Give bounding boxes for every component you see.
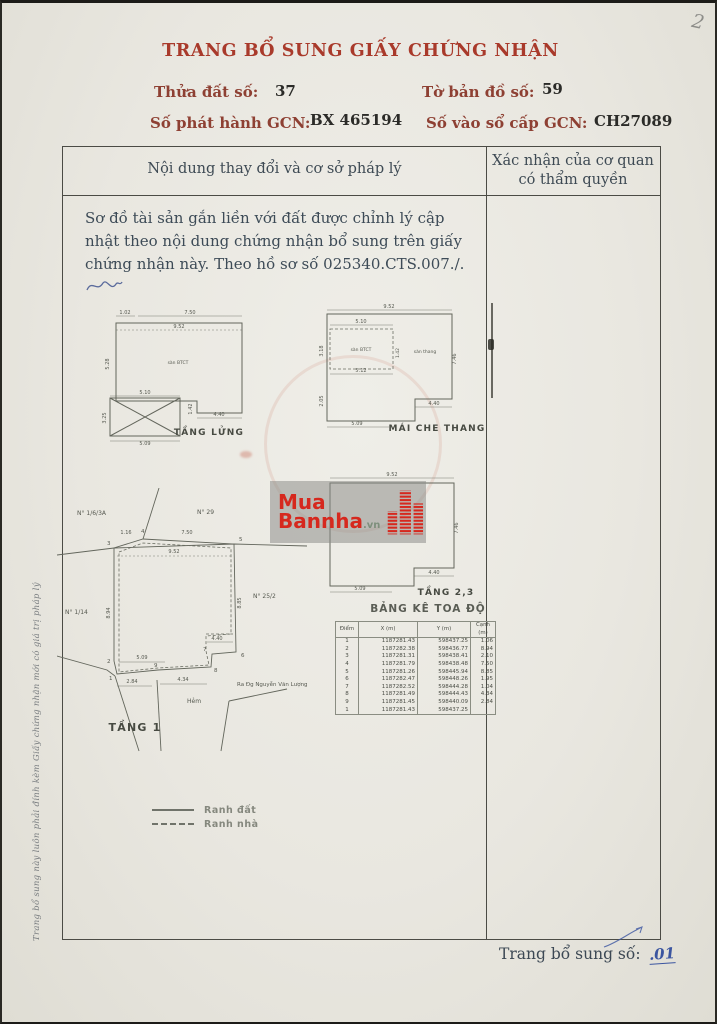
coord-cell-x: 1187281.26 [359, 669, 418, 677]
point-label: 3 [107, 541, 111, 547]
neighbor-parcel-labels: N° 1/6/3A N° 29 N° 1/14 N° 25/2 [65, 509, 276, 616]
coord-cell-canh: 2.10 [471, 653, 496, 661]
coord-row: 61187282.47598448.261.95 [336, 676, 496, 684]
coord-row: 81187281.49598444.434.34 [336, 691, 496, 699]
dim-label: 4.40 [211, 636, 222, 642]
coord-row: 71187282.52598444.281.04 [336, 684, 496, 692]
coord-header-row: Điểm X (m) Y (m) Cạnh (m) [336, 622, 496, 638]
dim-label: 5.28 [105, 358, 111, 369]
coord-cell-canh: 1.04 [471, 684, 496, 692]
dim-label: 9.52 [168, 549, 179, 555]
field-value-so-phat-hanh: BX 465194 [310, 111, 402, 129]
dim-label: 5.10 [355, 319, 366, 325]
content-paragraph: Sơ đồ tài sản gắn liền với đất được chỉn… [85, 207, 473, 298]
coord-cell-y: 598445.94 [418, 669, 471, 677]
coord-cell-x: 1187281.43 [359, 707, 418, 715]
coord-cell-y: 598438.41 [418, 653, 471, 661]
solid-line-sample [152, 809, 194, 811]
coord-cell-diem: 3 [336, 653, 359, 661]
coord-cell-diem: 8 [336, 691, 359, 699]
coord-cell-x: 1187282.38 [359, 646, 418, 654]
coord-cell-diem: 1 [336, 638, 359, 646]
plan-dim-lines [327, 310, 452, 427]
coord-cell-diem: 1 [336, 707, 359, 715]
footer: Trang bổ sung số:.01 [499, 944, 675, 964]
point-label: 5 [239, 537, 243, 543]
dim-label: 1.42 [395, 348, 401, 358]
coord-cell-canh: 8.85 [471, 669, 496, 677]
coord-cell-canh: 8.94 [471, 646, 496, 654]
dim-label: 7.46 [452, 353, 458, 364]
coord-cell-canh: 1.95 [471, 676, 496, 684]
dim-label: 5.12 [355, 368, 366, 374]
point-label: 8 [214, 668, 218, 674]
coord-cell-x: 1187281.43 [359, 638, 418, 646]
coord-table-title: BẢNG KÊ TOA ĐỘ [362, 603, 494, 615]
dim-label: 2.84 [126, 679, 137, 685]
coord-cell-y: 598440.09 [418, 699, 471, 707]
field-value-so-vao-so: CH27089 [594, 112, 672, 130]
coord-cell-x: 1187281.31 [359, 653, 418, 661]
dim-label: 7.50 [184, 310, 195, 316]
site-plan-tang-1: 1.16 7.50 9.52 5.09 2.84 4.34 4.40 8.94 … [57, 488, 312, 753]
dim-label: 9.52 [383, 304, 394, 310]
side-vertical-note: Trang bổ sung này luôn phải đính kèm Giấ… [32, 541, 42, 941]
col2-header: Xác nhận của cơ quan có thẩm quyền [487, 152, 659, 190]
coord-header-x: X (m) [359, 622, 418, 638]
scan-artifact-mark [488, 339, 494, 350]
dim-label: 7.50 [181, 530, 192, 536]
plan-title-tang-2-3: TẦNG 2,3 [418, 585, 475, 598]
watermark-buildings-icon [386, 485, 426, 539]
coord-cell-x: 1187282.52 [359, 684, 418, 692]
floor-plan-tang-lung: 1.02 7.50 9.52 5.28 5.10 5.09 3.25 4.40 … [102, 306, 277, 446]
table-header-row: Nội dung thay đổi và cơ sở pháp lý Xác n… [63, 147, 660, 196]
dim-label: 5.09 [351, 421, 362, 427]
field-value-thua-dat: 37 [275, 82, 296, 100]
coord-cell-x: 1187281.45 [359, 699, 418, 707]
coord-cell-diem: 6 [336, 676, 359, 684]
pen-stroke [602, 925, 644, 949]
dim-label: 4.40 [213, 412, 224, 418]
coord-row: 31187281.31598438.412.10 [336, 653, 496, 661]
coord-row: 11187281.43598437.25 [336, 707, 496, 715]
legend-item-ranh-dat: Ranh đất [152, 803, 259, 817]
coord-cell-canh: 1.06 [471, 638, 496, 646]
dim-label: 5.09 [136, 655, 147, 661]
coord-cell-canh [471, 707, 496, 715]
legend-item-ranh-nha: Ranh nhà [152, 817, 259, 831]
street-label: Ra Đg Nguyễn Văn Lượng [237, 681, 308, 688]
scan-artifact-line [491, 303, 493, 398]
coord-table-body: 11187281.43598437.251.0621187282.3859843… [336, 638, 496, 715]
red-ink-smudge [240, 451, 252, 458]
plan-dim-lines [110, 316, 242, 441]
coord-cell-x: 1187281.79 [359, 661, 418, 669]
page-title: TRANG BỔ SUNG GIẤY CHỨNG NHẬN [2, 41, 717, 61]
coord-header-diem: Điểm [336, 622, 359, 638]
coord-cell-y: 598438.48 [418, 661, 471, 669]
house-boundary-lines [117, 543, 233, 686]
content-text: Sơ đồ tài sản gắn liền với đất được chỉn… [85, 209, 464, 273]
coord-cell-y: 598444.43 [418, 691, 471, 699]
dim-label: 4.40 [428, 401, 439, 407]
dashed-line-sample [152, 823, 194, 825]
coord-cell-diem: 9 [336, 699, 359, 707]
dim-label: 5.09 [139, 441, 150, 446]
dim-label: 8.94 [106, 607, 112, 618]
dim-label: 3.18 [319, 345, 325, 356]
coord-row: 91187281.45598440.092.84 [336, 699, 496, 707]
land-boundary-lines [57, 488, 307, 751]
point-label: 1 [109, 676, 113, 682]
handwritten-page-number: 2 [690, 10, 706, 34]
dim-label: 1.16 [120, 530, 131, 536]
coord-cell-y: 598437.25 [418, 707, 471, 715]
coord-header-y: Y (m) [418, 622, 471, 638]
plan-title-mai-che-thang: MÁI CHE THANG [389, 422, 486, 434]
coord-cell-diem: 4 [336, 661, 359, 669]
point-label: 7 [203, 647, 207, 653]
watermark-suffix: .vn [363, 520, 380, 531]
plan-title-tang-1: TẦNG 1 [109, 720, 162, 734]
area-label-stair: sàn thang [414, 348, 437, 355]
dim-label: 9.52 [386, 472, 397, 478]
coord-cell-y: 598448.26 [418, 676, 471, 684]
coord-row: 11187281.43598437.251.06 [336, 638, 496, 646]
coord-cell-y: 598444.28 [418, 684, 471, 692]
neighbor-label: N° 25/2 [253, 593, 276, 600]
coord-cell-canh: 7.50 [471, 661, 496, 669]
field-label-so-phat-hanh: Số phát hành GCN: [150, 114, 310, 132]
legend-label: Ranh đất [204, 805, 256, 816]
point-label: 2 [107, 659, 111, 665]
coord-cell-x: 1187281.49 [359, 691, 418, 699]
neighbor-label: N° 1/14 [65, 609, 88, 616]
dim-label: 8.85 [237, 597, 243, 608]
coord-row: 51187281.26598445.948.85 [336, 669, 496, 677]
plan-title-tang-lung: TẦNG LỬNG [174, 425, 244, 438]
dim-label: 4.34 [177, 677, 188, 683]
scanned-document-page: 2 TRANG BỔ SUNG GIẤY CHỨNG NHẬN Thửa đất… [0, 0, 717, 1024]
field-label-to-ban-do: Tờ bản đồ số: [422, 83, 534, 101]
coord-cell-diem: 5 [336, 669, 359, 677]
dim-label: 5.10 [139, 390, 150, 396]
crossed-annex [110, 398, 180, 436]
dim-label: 5.09 [354, 586, 365, 592]
dim-label: 1.42 [188, 403, 194, 414]
handwritten-scribble [85, 277, 123, 295]
field-label-so-vao-so: Số vào sổ cấp GCN: [426, 114, 587, 132]
point-label: 9 [154, 663, 158, 669]
dim-label: 1.02 [119, 310, 130, 316]
footer-handwritten-value: .01 [648, 944, 675, 965]
dim-label: 4.40 [428, 570, 439, 576]
coord-table: Điểm X (m) Y (m) Cạnh (m) 11187281.43598… [335, 621, 496, 715]
area-label: sàn BTCT [168, 359, 189, 366]
coord-row: 21187282.38598436.778.94 [336, 646, 496, 654]
field-value-to-ban-do: 59 [542, 80, 563, 98]
dim-label: 9.52 [173, 324, 184, 330]
alley-label: Hẻm [187, 698, 201, 705]
legend-label: Ranh nhà [204, 819, 259, 830]
coord-cell-canh: 2.84 [471, 699, 496, 707]
neighbor-label: N° 1/6/3A [77, 510, 107, 517]
neighbor-label: N° 29 [197, 509, 214, 516]
dim-label: 7.46 [454, 522, 460, 533]
point-label: 4 [141, 529, 145, 535]
coord-cell-x: 1187282.47 [359, 676, 418, 684]
coord-cell-y: 598437.25 [418, 638, 471, 646]
floor-plan-mai-che-thang: 9.52 5.10 5.12 3.18 2.05 7.46 1.42 4.40 … [317, 301, 487, 436]
plan-outline [116, 323, 242, 413]
coord-row: 41187281.79598438.487.50 [336, 661, 496, 669]
dim-label: 3.25 [102, 412, 108, 423]
col1-header: Nội dung thay đổi và cơ sở pháp lý [63, 161, 486, 177]
field-label-thua-dat: Thửa đất số: [154, 83, 258, 101]
coord-header-canh: Cạnh (m) [471, 622, 496, 638]
coord-cell-canh: 4.34 [471, 691, 496, 699]
map-legend: Ranh đất Ranh nhà [152, 803, 259, 831]
coord-cell-diem: 7 [336, 684, 359, 692]
dim-label: 2.05 [319, 395, 325, 406]
point-label: 6 [241, 653, 245, 659]
coord-cell-diem: 2 [336, 646, 359, 654]
area-label: sàn BTCT [351, 346, 372, 353]
coord-cell-y: 598436.77 [418, 646, 471, 654]
